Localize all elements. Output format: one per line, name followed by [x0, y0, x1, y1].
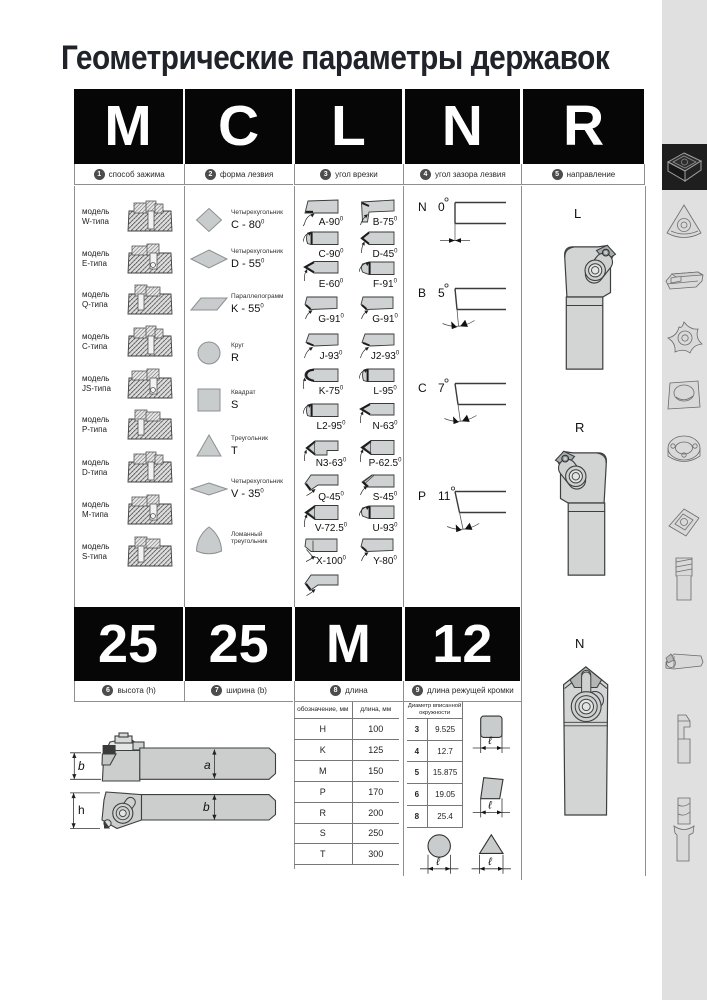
svg-text:ℓ: ℓ	[488, 855, 493, 867]
svg-text:ℓ: ℓ	[488, 799, 493, 811]
svg-text:a: a	[204, 758, 211, 772]
svg-text:ℓ: ℓ	[488, 735, 493, 747]
svg-text:0: 0	[438, 200, 445, 214]
svg-text:N: N	[418, 200, 427, 214]
svg-text:P: P	[418, 489, 426, 503]
svg-text:5: 5	[438, 286, 445, 300]
svg-text:11: 11	[438, 489, 451, 503]
svg-text:b: b	[78, 759, 85, 773]
svg-text:C: C	[418, 381, 427, 395]
svg-text:b: b	[203, 800, 210, 814]
svg-text:ℓ: ℓ	[435, 855, 440, 867]
svg-text:h: h	[78, 803, 85, 817]
svg-text:B: B	[418, 286, 426, 300]
svg-text:7: 7	[438, 381, 445, 395]
